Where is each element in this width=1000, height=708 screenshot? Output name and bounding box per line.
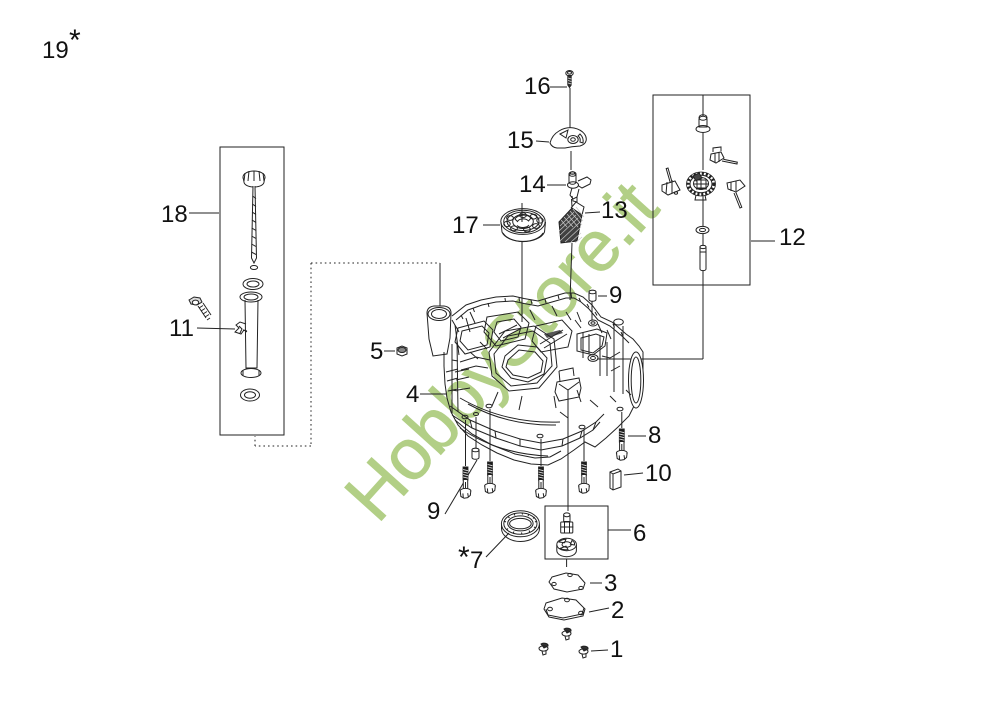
svg-text:11: 11: [169, 315, 194, 342]
svg-text:3: 3: [604, 570, 617, 597]
svg-text:10: 10: [645, 460, 672, 487]
svg-text:*: *: [69, 24, 81, 57]
svg-text:9: 9: [427, 498, 440, 525]
svg-text:2: 2: [611, 597, 624, 624]
svg-text:15: 15: [507, 127, 534, 154]
svg-text:*: *: [458, 541, 470, 574]
svg-text:13: 13: [601, 197, 628, 224]
svg-text:5: 5: [370, 338, 383, 365]
svg-text:16: 16: [524, 73, 551, 100]
svg-text:6: 6: [633, 520, 646, 547]
svg-text:17: 17: [452, 212, 479, 239]
svg-text:4: 4: [406, 381, 419, 408]
svg-text:8: 8: [648, 422, 661, 449]
svg-text:12: 12: [779, 224, 806, 251]
svg-text:19: 19: [42, 37, 69, 64]
svg-text:1: 1: [610, 636, 623, 663]
svg-text:14: 14: [519, 171, 546, 198]
svg-text:7: 7: [470, 547, 483, 574]
svg-text:9: 9: [609, 282, 622, 309]
svg-text:18: 18: [161, 201, 188, 228]
